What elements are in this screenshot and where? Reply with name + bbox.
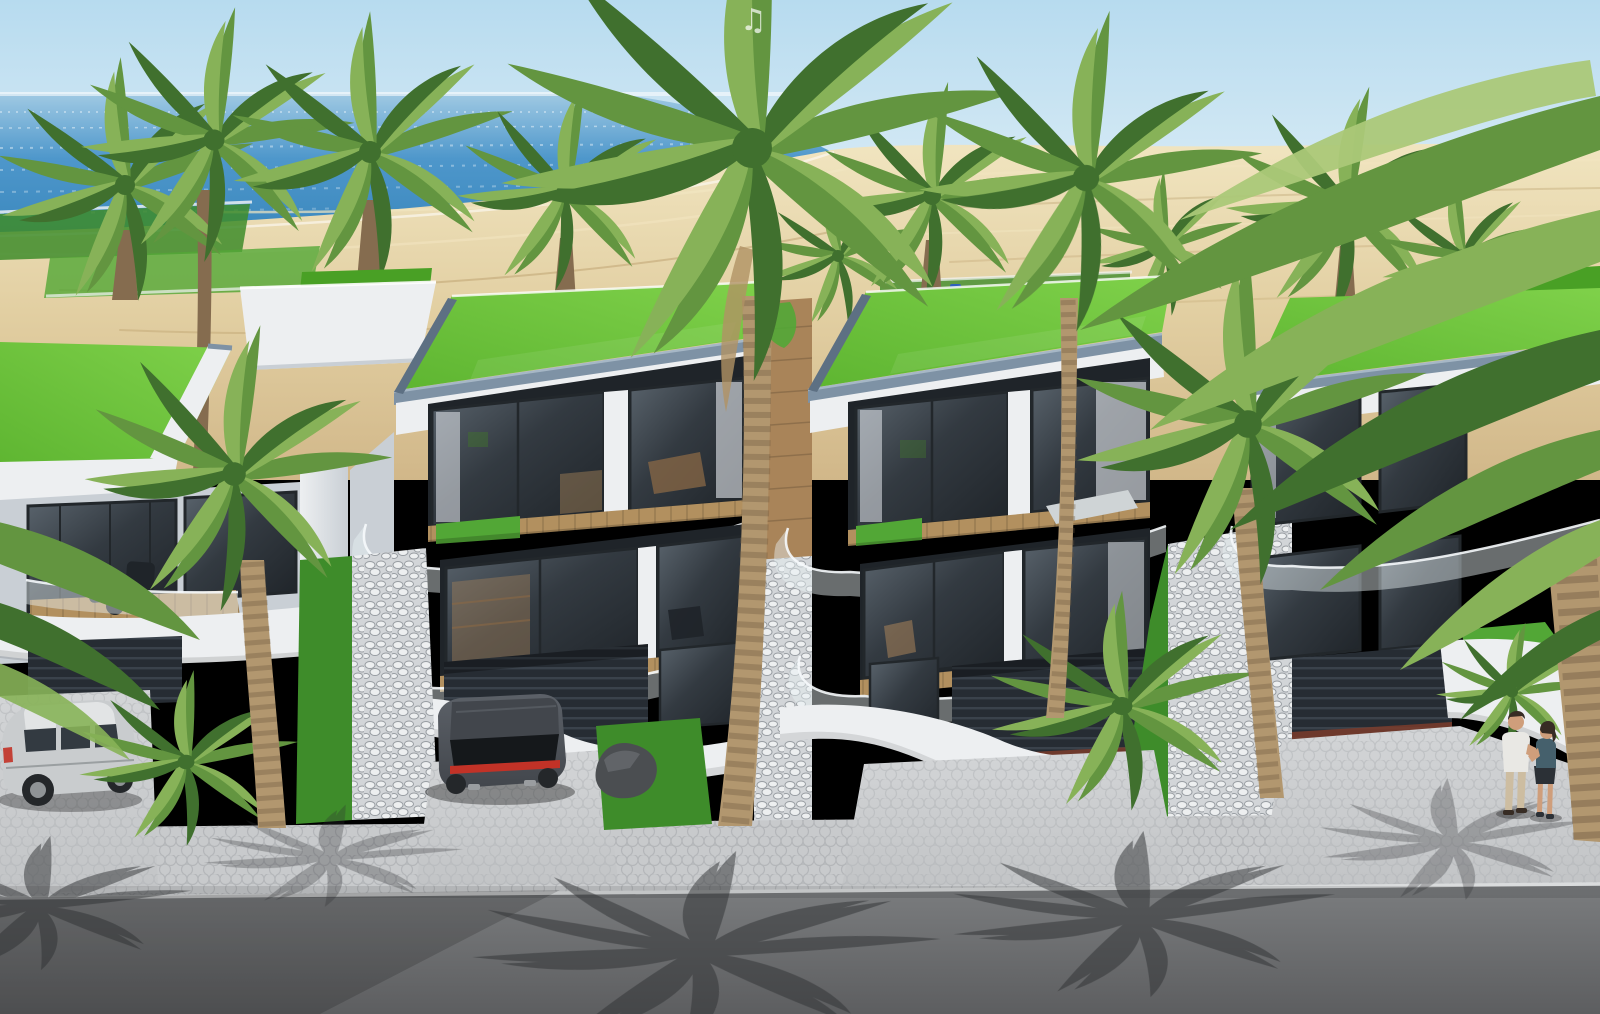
gap-left-landscape <box>296 548 438 824</box>
pebble-band <box>352 548 438 820</box>
scene-svg: ♫ <box>0 0 1600 1014</box>
curtain <box>436 412 460 522</box>
suv-taillight <box>3 747 13 763</box>
curtain <box>860 410 882 522</box>
music-note-watermark: ♫ <box>740 3 767 38</box>
curtain <box>716 382 742 498</box>
dark-sports-car <box>425 694 575 805</box>
lawn-strip <box>296 556 352 824</box>
render-canvas: ♫ <box>0 0 1600 1014</box>
chair <box>884 620 916 658</box>
